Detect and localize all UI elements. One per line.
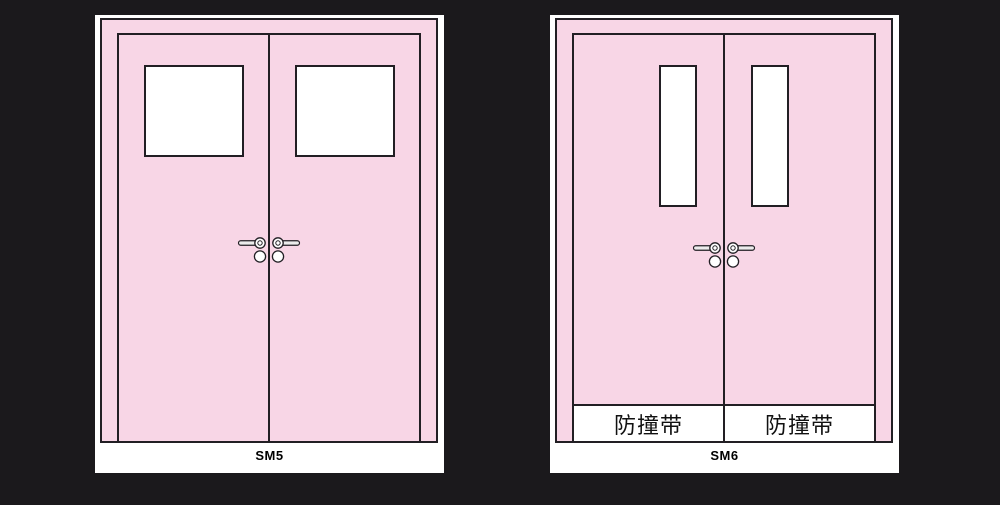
vision-window <box>144 65 244 157</box>
vision-window <box>751 65 789 207</box>
figure-caption: SM5 <box>255 448 283 463</box>
handle-rose-left-icon <box>710 243 720 253</box>
lock-cylinder-right-icon <box>272 251 283 262</box>
door-figure-sm6: 防撞带 防撞带 SM6 <box>550 15 899 473</box>
impact-strip-label: 防撞带 <box>765 408 834 440</box>
impact-strip: 防撞带 <box>725 404 874 441</box>
door-hardware <box>684 238 764 270</box>
door-hardware <box>229 233 309 265</box>
impact-strip-label: 防撞带 <box>614 408 683 440</box>
canvas-background: { "figures": [ { "id": "sm5", "caption":… <box>0 0 1000 505</box>
figure-caption: SM6 <box>710 448 738 463</box>
impact-strip: 防撞带 <box>574 404 723 441</box>
double-door-leaves: 防撞带 防撞带 <box>572 33 876 441</box>
lock-cylinder-right-icon <box>727 256 738 267</box>
handle-rose-right-icon <box>728 243 738 253</box>
door-frame <box>100 18 438 443</box>
handle-rose-left-icon <box>255 238 265 248</box>
vision-window <box>295 65 395 157</box>
vision-window <box>659 65 697 207</box>
caption-bar: SM5 <box>95 443 444 473</box>
lock-cylinder-left-icon <box>709 256 720 267</box>
handle-rose-right-icon <box>273 238 283 248</box>
door-frame: 防撞带 防撞带 <box>555 18 893 443</box>
double-door-leaves <box>117 33 421 441</box>
caption-bar: SM6 <box>550 443 899 473</box>
door-figure-sm5: SM5 <box>95 15 444 473</box>
lock-cylinder-left-icon <box>254 251 265 262</box>
